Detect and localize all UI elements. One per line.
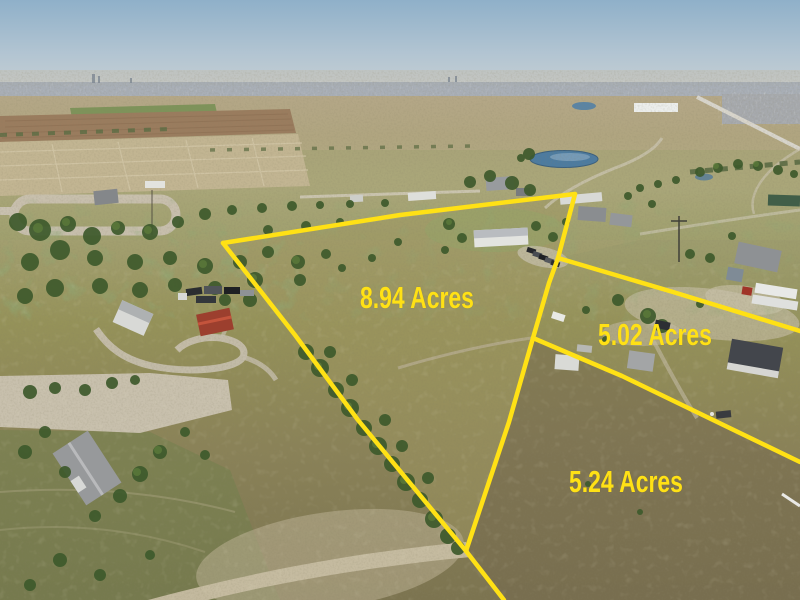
aerial-photo: 8.94 Acres 5.02 Acres 5.24 Acres <box>0 0 800 600</box>
center-house <box>474 228 529 248</box>
sky <box>0 0 800 102</box>
parcel-label-524: 5.24 Acres <box>569 466 683 497</box>
parcel-label-502: 5.02 Acres <box>598 319 712 350</box>
parcel-label-894: 8.94 Acres <box>360 282 474 313</box>
